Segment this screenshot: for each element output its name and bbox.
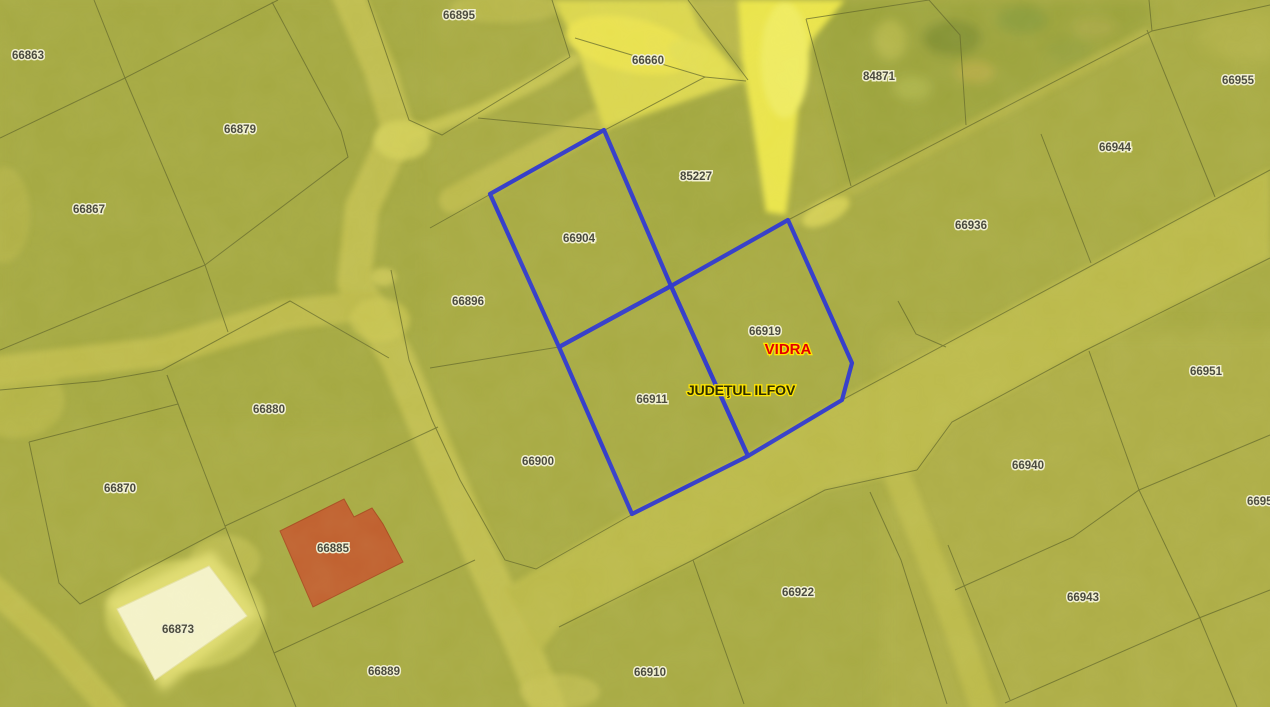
svg-text:JUDEŢUL ILFOV: JUDEŢUL ILFOV: [687, 383, 796, 399]
svg-text:VIDRA: VIDRA: [765, 341, 812, 358]
